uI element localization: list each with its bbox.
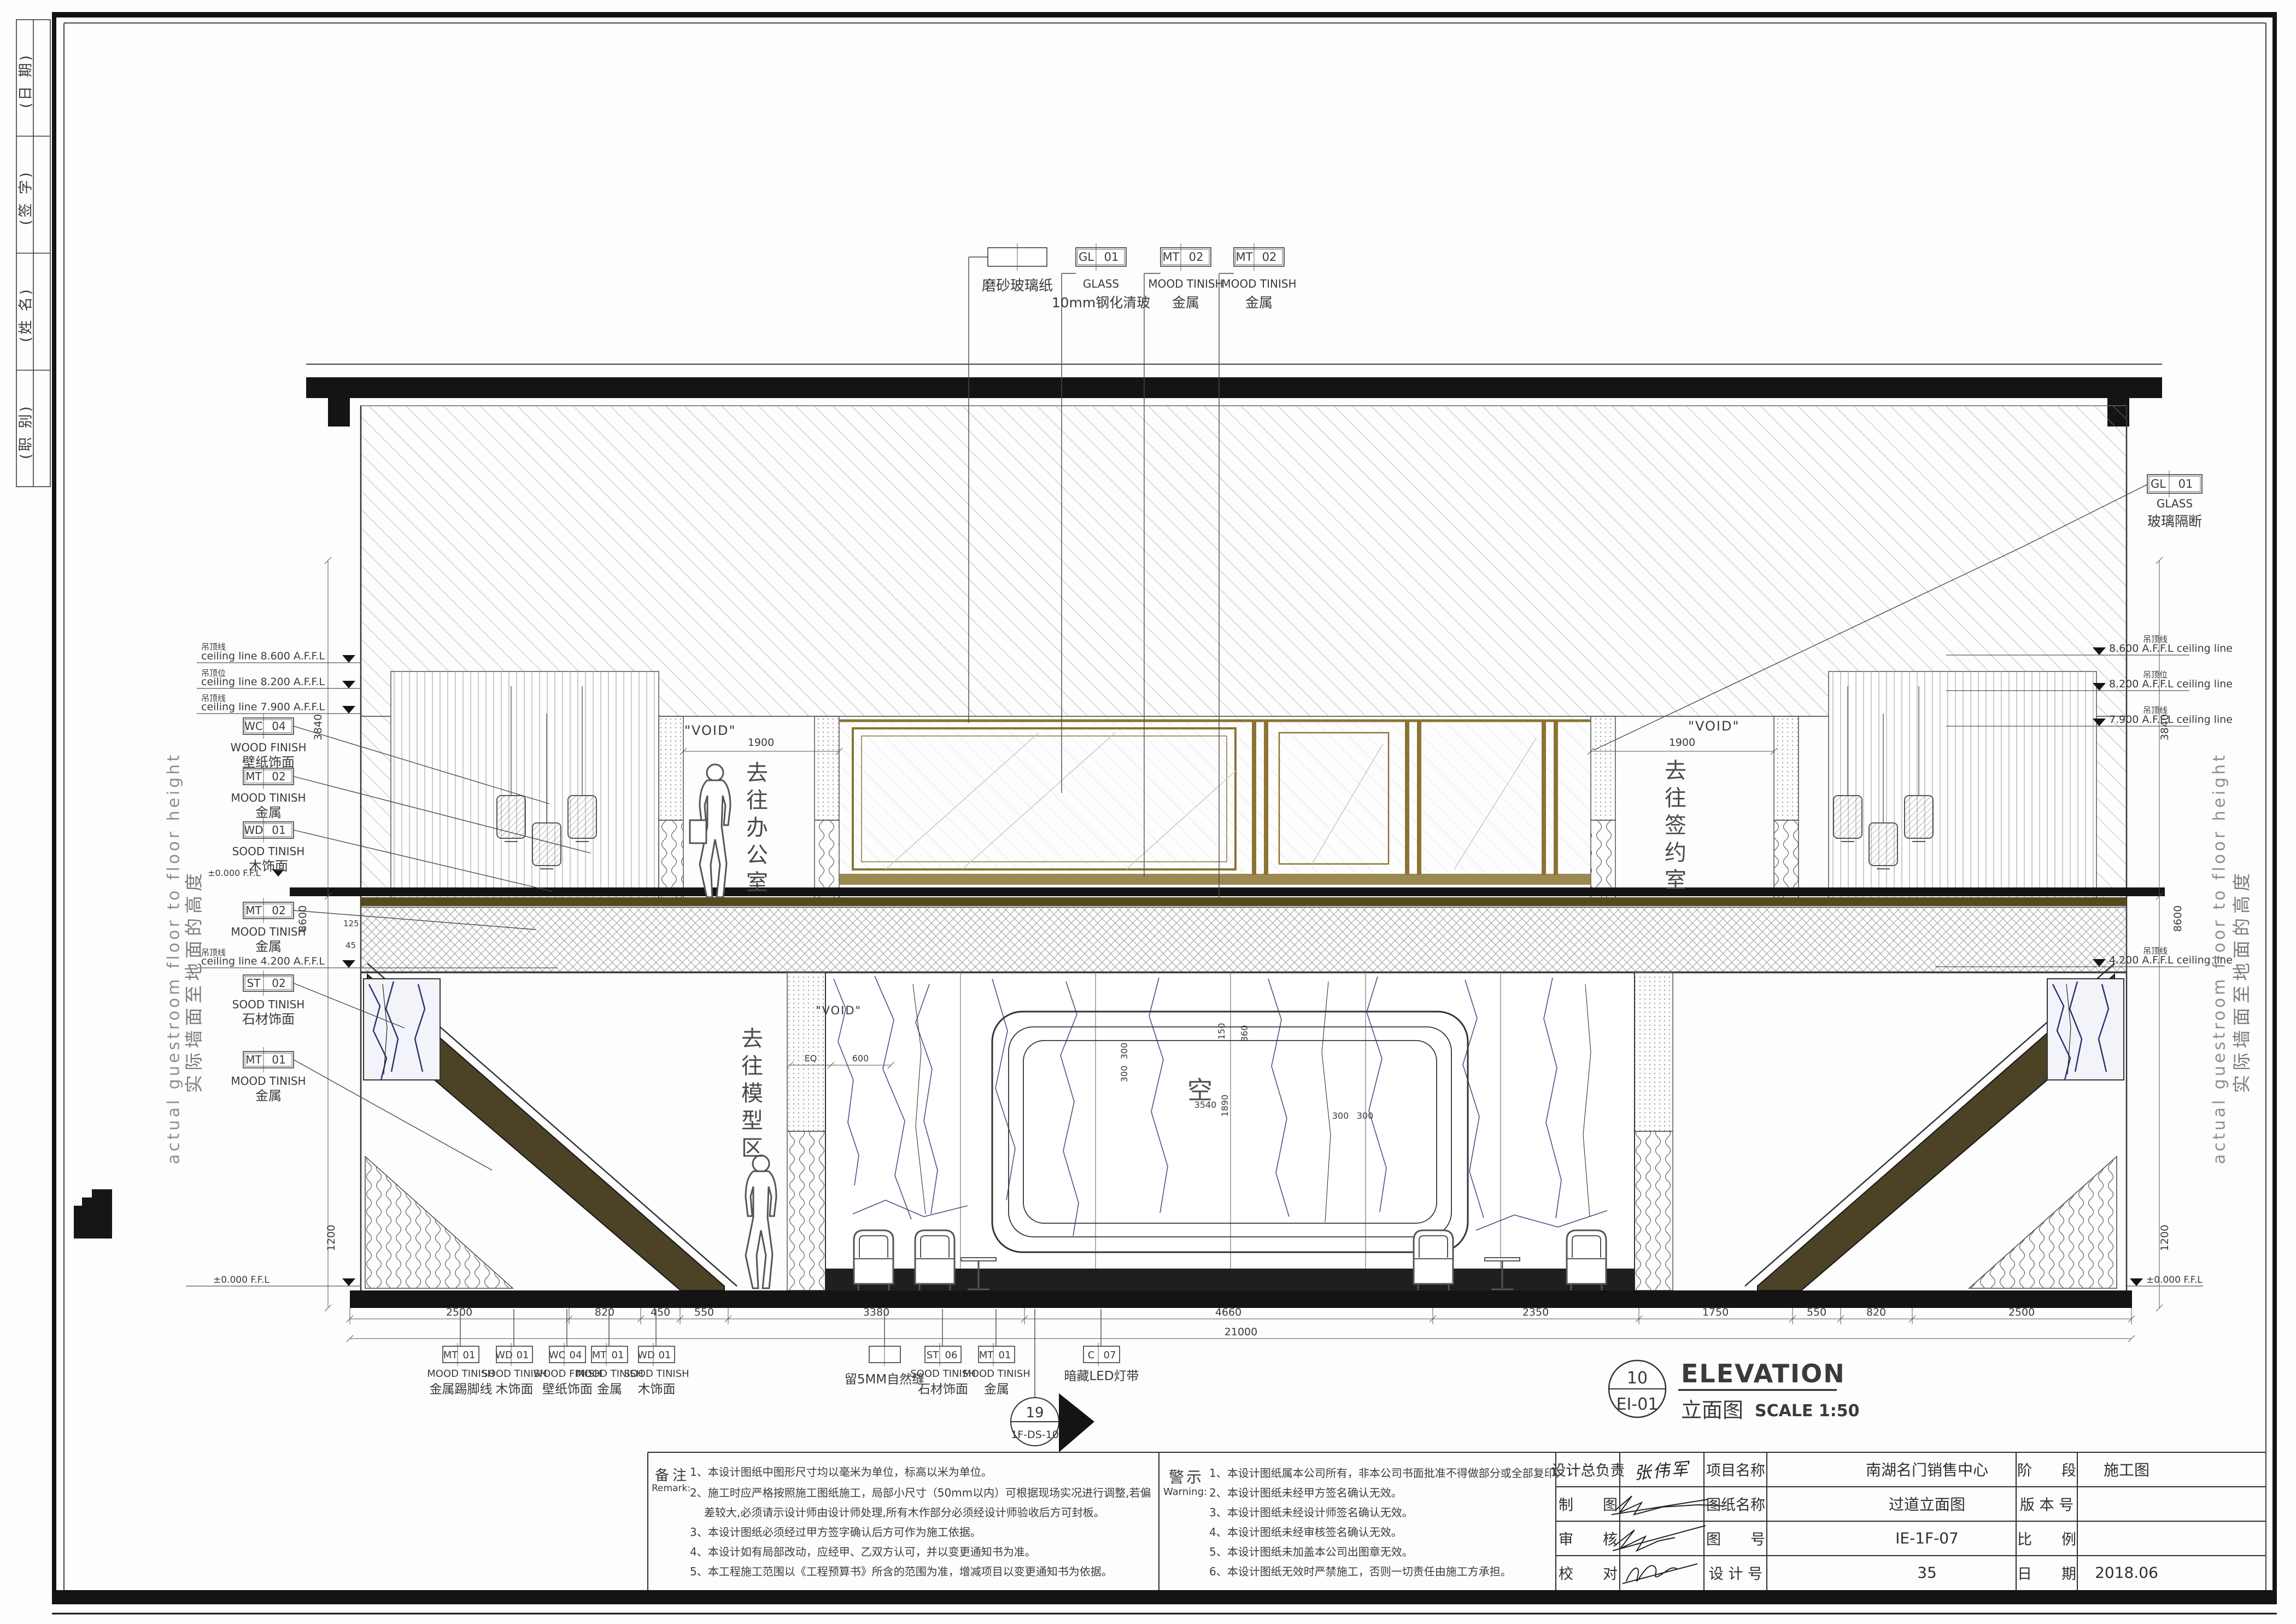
- svg-text:MT: MT: [245, 770, 262, 783]
- wallpaper-panel-left: [391, 671, 659, 898]
- revision-cell-date: (日 期): [15, 26, 35, 136]
- svg-text:壁纸饰面: 壁纸饰面: [242, 755, 295, 770]
- note-item: 4、本设计如有局部改动，应经甲、乙双方认可，并以变更通知书为准。: [690, 1543, 1036, 1559]
- svg-text:MT: MT: [592, 1350, 607, 1361]
- wallpaper-panel-right: [1829, 671, 2096, 898]
- callout-bottom-8: MT 01 MOOD TINISH 金属: [963, 1309, 1030, 1397]
- callout-bottom-9: C 07 暗藏LED灯带: [1064, 1309, 1139, 1383]
- drawing-sheet: 吊顶线 ceiling line 8.600 A.F.F.L 吊顶位 ceili…: [0, 0, 2296, 1624]
- warning-item: 3、本设计图纸未经设计师签名确认无效。: [1209, 1504, 1413, 1520]
- svg-text:WD: WD: [244, 823, 263, 837]
- svg-text:125: 125: [343, 919, 359, 928]
- svg-text:±0.000 F.F.L: ±0.000 F.F.L: [213, 1275, 270, 1286]
- note-item: 5、本工程施工范围以《工程预算书》所含的范围为准，增减项目以变更通知书为依据。: [690, 1563, 1112, 1579]
- svg-text:1200: 1200: [325, 1225, 337, 1251]
- svg-text:820: 820: [1866, 1306, 1886, 1318]
- svg-text:壁纸饰面: 壁纸饰面: [542, 1382, 593, 1397]
- svg-text:04: 04: [570, 1350, 582, 1361]
- svg-text:02: 02: [1262, 250, 1277, 264]
- svg-text:GLASS: GLASS: [2157, 497, 2193, 510]
- svg-text:MT: MT: [245, 904, 262, 917]
- svg-text:ST: ST: [927, 1350, 939, 1361]
- svg-text:3840: 3840: [2159, 714, 2171, 740]
- svg-text:玻璃隔断: 玻璃隔断: [2147, 513, 2202, 529]
- svg-text:金属踢脚线: 金属踢脚线: [430, 1382, 493, 1397]
- tb-version-label: 版 本 号: [2020, 1493, 2074, 1515]
- tb-design-label: 设 计 号: [1709, 1562, 1762, 1584]
- svg-text:MOOD TINISH: MOOD TINISH: [231, 1074, 306, 1088]
- svg-text:1900: 1900: [748, 737, 774, 749]
- svg-text:01: 01: [272, 1053, 285, 1066]
- tb-chief-label: 设计总负责: [1551, 1459, 1625, 1480]
- svg-text:1200: 1200: [2159, 1225, 2171, 1251]
- revision-cell-sign: (签 字): [15, 143, 35, 253]
- tb-number-label: 图 号: [1706, 1528, 1765, 1549]
- tb-date-value: 2018.06: [2095, 1564, 2158, 1582]
- accent-marble-right: [2047, 979, 2124, 1080]
- svg-text:21000: 21000: [1225, 1326, 1257, 1338]
- svg-text:1F-DS-10: 1F-DS-10: [1011, 1429, 1059, 1441]
- svg-text:1900: 1900: [1669, 737, 1695, 749]
- tb-check-label: 审 核: [1559, 1528, 1618, 1549]
- svg-text:金属: 金属: [1245, 295, 1273, 311]
- svg-text:8.600 A.F.F.L ceiling line: 8.600 A.F.F.L ceiling line: [2109, 642, 2233, 655]
- svg-text:04: 04: [272, 720, 285, 733]
- tb-drawing-value: 过道立面图: [1889, 1493, 1965, 1515]
- svg-text:金属: 金属: [984, 1382, 1009, 1397]
- svg-text:WD: WD: [495, 1350, 513, 1361]
- tb-stage-value: 施工图: [2104, 1458, 2149, 1480]
- svg-text:MT: MT: [245, 1053, 262, 1066]
- svg-text:01: 01: [659, 1350, 671, 1361]
- void-label-right: "VOID": [1688, 718, 1740, 734]
- note-item: 3、本设计图纸必须经过甲方签字确认后方可作为施工依据。: [690, 1523, 981, 1539]
- person-standing: [746, 1155, 776, 1288]
- svg-text:ceiling line 8.200 A.F.F.L: ceiling line 8.200 A.F.F.L: [201, 676, 325, 688]
- svg-text:MOOD TINISH: MOOD TINISH: [231, 925, 306, 938]
- svg-text:8.200 A.F.F.L ceiling line: 8.200 A.F.F.L ceiling line: [2109, 678, 2233, 690]
- warning-item: 2、本设计图纸未经甲方签名确认无效。: [1209, 1484, 1402, 1500]
- svg-text:550: 550: [1807, 1306, 1826, 1318]
- svg-text:立面图: 立面图: [1681, 1398, 1743, 1422]
- svg-text:EQ: EQ: [805, 1053, 817, 1064]
- warning-item: 4、本设计图纸未经审核签名确认无效。: [1209, 1523, 1402, 1539]
- callout-bottom-5: WD 01 SOOD TINISH 木饰面: [624, 1309, 689, 1397]
- notes-label-en: Remark:: [652, 1483, 690, 1494]
- svg-text:C: C: [1088, 1350, 1095, 1361]
- svg-text:10: 10: [1627, 1369, 1648, 1388]
- tb-chief-signature: 张伟军: [1633, 1454, 1691, 1484]
- svg-text:金属: 金属: [255, 1088, 282, 1103]
- svg-text:1890: 1890: [1220, 1095, 1230, 1117]
- svg-text:01: 01: [517, 1350, 529, 1361]
- warnings-label-zh: 警示: [1169, 1465, 1204, 1487]
- svg-text:WC: WC: [244, 720, 263, 733]
- notes-label-zh: 备注: [655, 1464, 690, 1485]
- svg-text:MT: MT: [443, 1350, 459, 1361]
- svg-text:暗藏LED灯带: 暗藏LED灯带: [1064, 1369, 1139, 1383]
- tb-number-value: IE-1F-07: [1895, 1529, 1959, 1547]
- svg-text:石材饰面: 石材饰面: [242, 1012, 295, 1027]
- note-item: 差较大,必须请示设计师由设计师处理,所有木作部分必须经设计师验收后方可封板。: [704, 1504, 1105, 1520]
- svg-text:3840: 3840: [312, 714, 324, 740]
- svg-text:MT: MT: [1236, 250, 1253, 264]
- svg-text:GL: GL: [1079, 250, 1094, 264]
- dimension-vertical-left: 3840 8600 125 45 1200: [297, 557, 359, 1311]
- svg-text:SCALE 1:50: SCALE 1:50: [1755, 1401, 1860, 1421]
- tb-date-label: 日 期: [2017, 1562, 2076, 1584]
- svg-text:金属: 金属: [255, 805, 282, 820]
- floor-slab: [290, 887, 2165, 973]
- warnings-label-en: Warning:: [1163, 1486, 1207, 1498]
- svg-text:ELEVATION: ELEVATION: [1681, 1359, 1846, 1388]
- ground-floor-bar: [350, 1290, 2132, 1308]
- svg-text:MOOD TINISH: MOOD TINISH: [1148, 277, 1223, 290]
- person-walking: [690, 764, 730, 897]
- callout-bottom-1: MT 01 MOOD TINISH 金属踢脚线: [427, 1309, 495, 1397]
- tb-scale-label: 比 例: [2017, 1528, 2076, 1549]
- svg-text:19: 19: [1026, 1405, 1044, 1421]
- svg-text:MOOD TINISH: MOOD TINISH: [963, 1368, 1030, 1380]
- svg-text:WD: WD: [637, 1350, 655, 1361]
- tb-draft-label: 制 图: [1559, 1493, 1618, 1515]
- svg-text:木饰面: 木饰面: [249, 858, 288, 874]
- elevation-linework: 吊顶线 ceiling line 8.600 A.F.F.L 吊顶位 ceili…: [0, 0, 2296, 1624]
- room-label-office: 去往办公室: [739, 761, 771, 898]
- svg-text:07: 07: [1104, 1350, 1116, 1361]
- svg-text:GL: GL: [2151, 477, 2166, 490]
- svg-text:01: 01: [272, 823, 285, 837]
- svg-text:02: 02: [272, 770, 285, 783]
- svg-text:01: 01: [2178, 477, 2193, 490]
- svg-text:10mm钢化清玻: 10mm钢化清玻: [1052, 295, 1151, 311]
- svg-text:45: 45: [345, 940, 356, 950]
- svg-text:ST: ST: [247, 977, 261, 990]
- side-note-right-en: actual guestroom floor to floor height: [2210, 707, 2229, 1210]
- svg-text:360: 360: [1239, 1025, 1250, 1042]
- tb-stage-label: 阶 段: [2017, 1459, 2076, 1480]
- tb-proof-label: 校 对: [1559, 1562, 1618, 1584]
- warning-item: 5、本设计图纸未加盖本公司出图章无效。: [1209, 1543, 1413, 1559]
- warning-item: 1、本设计图纸属本公司所有，非本公司书面批准不得做部分或全部复印。: [1209, 1464, 1566, 1480]
- svg-text:磨砂玻璃纸: 磨砂玻璃纸: [982, 278, 1053, 294]
- room-label-model: 去往模型区: [734, 1027, 766, 1164]
- empty-label: 空: [1187, 1071, 1213, 1107]
- svg-text:300: 300: [1119, 1066, 1129, 1083]
- svg-text:金属: 金属: [1172, 295, 1199, 311]
- svg-text:2500: 2500: [446, 1306, 472, 1318]
- stair-section-glyph: [74, 1189, 112, 1239]
- svg-text:金属: 金属: [255, 939, 282, 954]
- svg-text:±0.000 F.F.L: ±0.000 F.F.L: [2146, 1275, 2203, 1286]
- svg-text:300: 300: [1332, 1111, 1349, 1121]
- svg-text:石材饰面: 石材饰面: [918, 1382, 968, 1397]
- svg-text:2500: 2500: [2008, 1306, 2035, 1318]
- tb-project-label: 项目名称: [1706, 1459, 1765, 1480]
- callout-bottom-7: ST 06 SOOD TINISH 石材饰面: [910, 1309, 975, 1397]
- svg-text:4660: 4660: [1215, 1306, 1241, 1318]
- svg-text:600: 600: [852, 1053, 869, 1064]
- svg-text:01: 01: [999, 1350, 1011, 1361]
- accent-marble-left: [364, 979, 440, 1080]
- void-label-left: "VOID": [684, 723, 736, 738]
- room-label-signing: 去往签约室: [1657, 759, 1689, 896]
- warning-item: 6、本设计图纸无效时严禁施工，否则一切责任由施工方承担。: [1209, 1563, 1512, 1579]
- tb-drawing-label: 图纸名称: [1706, 1493, 1765, 1515]
- svg-text:SOOD TINISH: SOOD TINISH: [232, 845, 305, 858]
- svg-text:3380: 3380: [863, 1306, 889, 1318]
- note-item: 1、本设计图纸中图形尺寸均以毫米为单位，标高以米为单位。: [690, 1463, 992, 1479]
- revision-cell-name: (姓 名): [15, 260, 35, 370]
- svg-text:MOOD TINISH: MOOD TINISH: [231, 791, 306, 804]
- svg-text:MOOD TINISH: MOOD TINISH: [1221, 277, 1296, 290]
- svg-text:01: 01: [1104, 250, 1119, 264]
- svg-text:MT: MT: [979, 1350, 994, 1361]
- svg-text:金属: 金属: [597, 1382, 622, 1397]
- svg-text:01: 01: [463, 1350, 476, 1361]
- svg-text:WC: WC: [549, 1350, 565, 1361]
- svg-text:1750: 1750: [1702, 1306, 1729, 1318]
- svg-text:ceiling line 4.200 A.F.F.L: ceiling line 4.200 A.F.F.L: [201, 955, 325, 967]
- glass-partition: [839, 716, 1591, 885]
- svg-text:300: 300: [1357, 1111, 1374, 1121]
- svg-text:GLASS: GLASS: [1083, 277, 1119, 290]
- note-item: 2、施工时应严格按照施工图纸施工，局部小尺寸（50mm以内）可根据现场实况进行调…: [690, 1484, 1151, 1500]
- svg-text:SOOD TINISH: SOOD TINISH: [232, 998, 305, 1011]
- svg-text:木饰面: 木饰面: [638, 1382, 676, 1397]
- revision-cell-title: (职 别): [15, 377, 35, 487]
- svg-text:WOOD FINISH: WOOD FINISH: [230, 741, 306, 754]
- svg-text:450: 450: [651, 1306, 670, 1318]
- tb-design-value: 35: [1917, 1564, 1937, 1582]
- svg-text:820: 820: [595, 1306, 614, 1318]
- svg-text:8600: 8600: [2172, 906, 2184, 932]
- svg-text:550: 550: [694, 1306, 714, 1318]
- svg-text:01: 01: [612, 1350, 624, 1361]
- svg-text:02: 02: [272, 904, 285, 917]
- svg-text:150: 150: [1216, 1023, 1227, 1040]
- svg-text:ceiling line 7.900 A.F.F.L: ceiling line 7.900 A.F.F.L: [201, 701, 325, 713]
- void-label-lower: "VOID": [816, 1004, 862, 1017]
- svg-text:ceiling line 8.600 A.F.F.L: ceiling line 8.600 A.F.F.L: [201, 650, 325, 662]
- svg-text:300: 300: [1119, 1043, 1129, 1060]
- side-note-left-zh: 实际墙面至地面的高度: [179, 735, 206, 1227]
- side-note-right-zh: 实际墙面至地面的高度: [2227, 735, 2253, 1227]
- svg-text:02: 02: [272, 977, 285, 990]
- svg-text:MT: MT: [1163, 250, 1180, 264]
- svg-text:EI-01: EI-01: [1616, 1395, 1659, 1414]
- svg-text:2350: 2350: [1522, 1306, 1549, 1318]
- svg-text:02: 02: [1189, 250, 1204, 264]
- tb-project-value: 南湖名门销售中心: [1866, 1458, 1988, 1480]
- view-title: 10 EI-01 ELEVATION 立面图 SCALE 1:50: [1609, 1359, 1860, 1422]
- svg-text:SOOD TINISH: SOOD TINISH: [624, 1368, 689, 1380]
- svg-text:06: 06: [945, 1350, 958, 1361]
- dimension-chain-bottom: 2500 820 450 550 3380 4660 2350 1750 550…: [347, 1306, 2135, 1342]
- svg-text:木饰面: 木饰面: [496, 1382, 534, 1397]
